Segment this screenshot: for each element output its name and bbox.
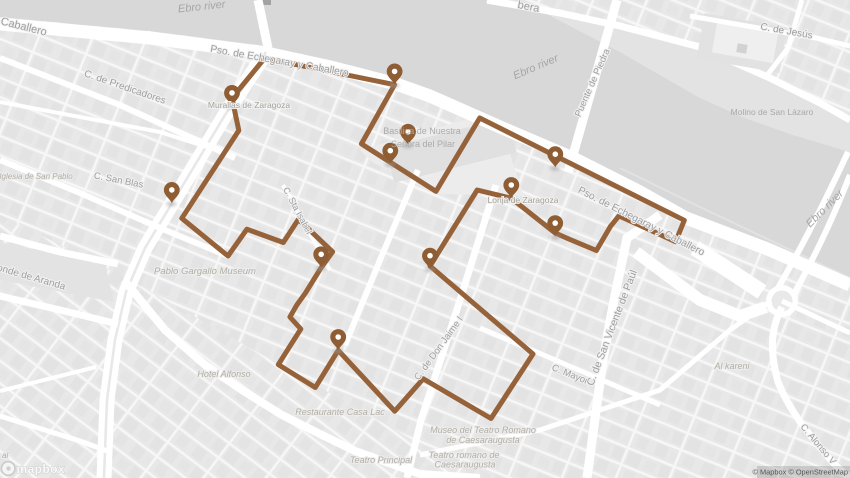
svg-text:al: al (2, 451, 8, 460)
svg-text:© Mapbox © OpenStreetMap: © Mapbox © OpenStreetMap (752, 468, 848, 477)
svg-text:mapbox: mapbox (17, 462, 65, 476)
